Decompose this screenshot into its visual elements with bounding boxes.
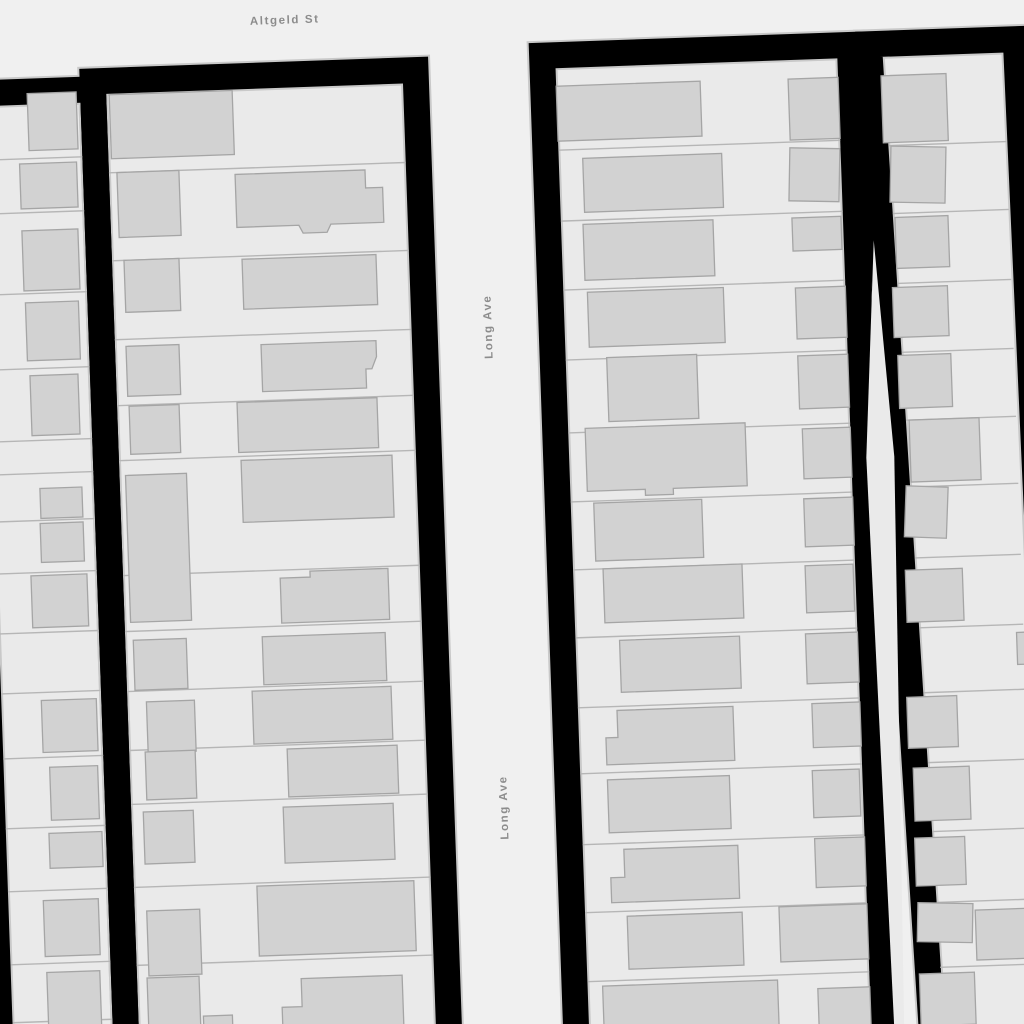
- building-footprint: [40, 522, 84, 562]
- building-footprint: [109, 91, 234, 159]
- building-footprint: [594, 499, 704, 561]
- building-footprint: [898, 354, 953, 409]
- building-footprint: [583, 153, 724, 212]
- building-footprint: [283, 803, 395, 863]
- building-footprint: [31, 574, 89, 628]
- building-footprint: [124, 258, 181, 312]
- building-footprint: [147, 976, 201, 1024]
- building-footprint: [812, 702, 862, 748]
- building-footprint: [261, 341, 378, 392]
- building-footprint: [795, 286, 847, 339]
- building-footprint: [117, 170, 181, 237]
- building-footprint: [133, 638, 188, 690]
- building-footprint: [22, 229, 80, 291]
- building-footprint: [917, 903, 973, 943]
- map-canvas: Altgeld StLong AveLong Ave: [0, 0, 1024, 1024]
- building-footprint: [607, 354, 699, 421]
- building-footprint: [610, 845, 740, 902]
- building-footprint: [913, 766, 971, 821]
- building-footprint: [895, 216, 950, 269]
- building-footprint: [620, 636, 742, 692]
- street-label: Long Ave: [481, 294, 495, 359]
- building-footprint: [252, 686, 393, 744]
- building-footprint: [818, 987, 871, 1024]
- building-footprint: [975, 908, 1024, 960]
- building-footprint: [49, 832, 103, 869]
- building-footprint: [587, 287, 725, 347]
- building-footprint: [583, 220, 715, 281]
- building-footprint: [25, 301, 80, 361]
- building-footprint: [805, 564, 855, 613]
- building-footprint: [890, 146, 946, 203]
- map-view[interactable]: Altgeld StLong AveLong Ave: [0, 0, 1024, 1024]
- building-footprint: [792, 216, 842, 251]
- building-footprint: [603, 564, 744, 623]
- building-footprint: [802, 427, 852, 479]
- building-footprint: [905, 568, 964, 622]
- building-footprint: [1017, 632, 1024, 665]
- building-footprint: [242, 255, 378, 310]
- building-footprint: [40, 487, 83, 518]
- building-footprint: [203, 1015, 233, 1024]
- building-footprint: [237, 398, 379, 453]
- street-label: Altgeld St: [250, 13, 320, 27]
- building-footprint: [41, 699, 98, 753]
- building-footprint: [262, 633, 387, 685]
- building-footprint: [603, 980, 780, 1024]
- building-footprint: [146, 700, 196, 753]
- building-footprint: [788, 77, 840, 140]
- building-footprint: [20, 162, 79, 209]
- building-footprint: [126, 345, 181, 397]
- building-footprint: [129, 405, 181, 455]
- building-footprint: [145, 750, 197, 800]
- building-footprint: [812, 769, 861, 818]
- building-footprint: [605, 706, 735, 764]
- building-footprint: [287, 745, 399, 797]
- building-footprint: [147, 909, 202, 976]
- building-footprint: [907, 696, 959, 749]
- building-footprint: [627, 912, 744, 969]
- building-footprint: [143, 810, 195, 864]
- building-footprint: [904, 486, 948, 538]
- building-footprint: [607, 776, 731, 833]
- building-footprint: [47, 971, 102, 1024]
- building-footprint: [881, 74, 948, 143]
- building-footprint: [892, 286, 949, 338]
- building-footprint: [779, 904, 869, 962]
- building-footprint: [804, 497, 855, 547]
- building-footprint: [27, 92, 78, 151]
- building-footprint: [798, 354, 850, 409]
- building-footprint: [585, 423, 747, 498]
- building-footprint: [556, 81, 702, 141]
- building-footprint: [915, 836, 967, 886]
- building-footprint: [815, 837, 867, 888]
- building-footprint: [50, 766, 100, 821]
- building-footprint: [30, 374, 80, 436]
- building-footprint: [909, 418, 981, 482]
- building-footprint: [125, 473, 191, 622]
- street-label: Long Ave: [497, 775, 511, 840]
- building-footprint: [919, 972, 976, 1024]
- building-footprint: [805, 632, 859, 684]
- building-footprint: [257, 881, 416, 956]
- building-footprint: [241, 455, 394, 522]
- building-footprint: [43, 899, 100, 957]
- building-footprint: [789, 148, 840, 202]
